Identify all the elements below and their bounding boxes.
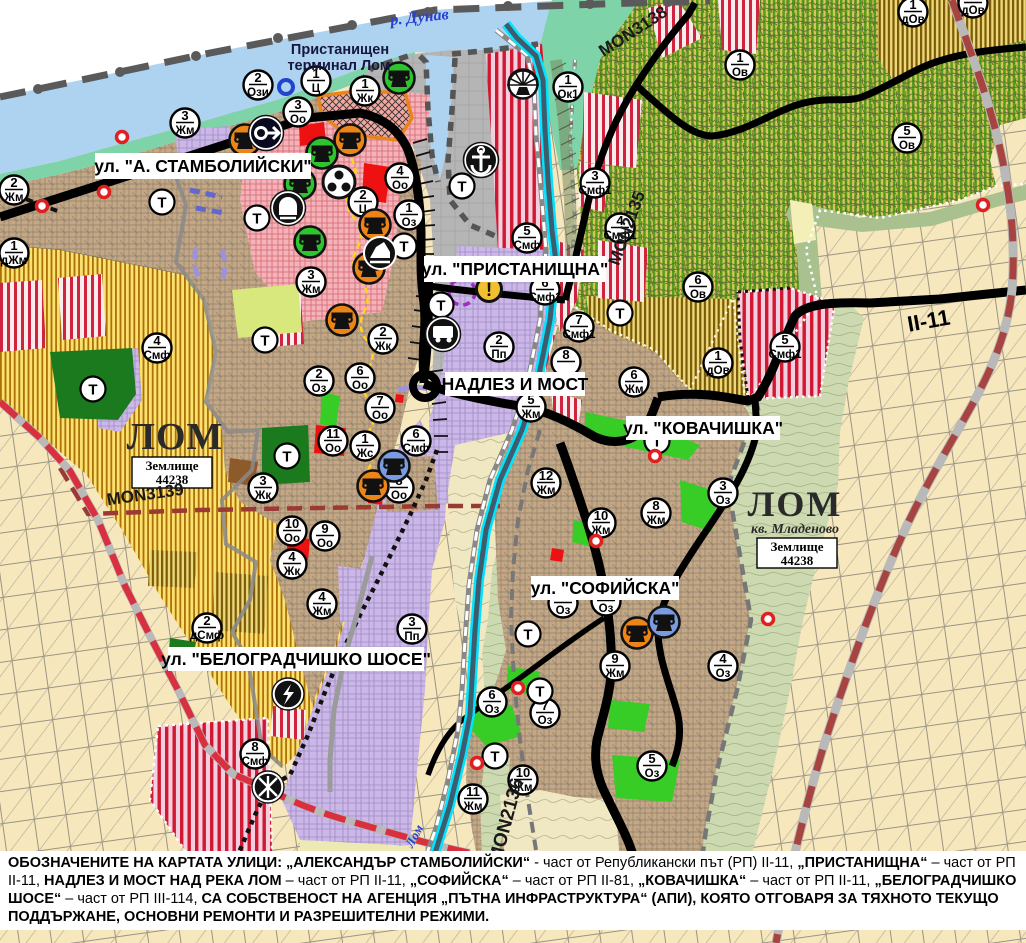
svg-text:Оз: Оз [538, 715, 553, 727]
svg-text:5: 5 [903, 123, 910, 138]
svg-text:Жк: Жк [254, 490, 271, 502]
svg-text:2: 2 [254, 70, 261, 85]
svg-text:10: 10 [516, 765, 530, 780]
svg-text:НАДЛЕЗ И МОСТ: НАДЛЕЗ И МОСТ [442, 374, 589, 394]
svg-text:Жк: Жк [283, 566, 300, 578]
svg-text:Оо: Оо [352, 380, 368, 392]
svg-text:1: 1 [405, 200, 412, 215]
svg-text:Оз: Оз [599, 603, 614, 615]
svg-text:1: 1 [714, 348, 721, 363]
svg-text:4: 4 [318, 589, 326, 604]
svg-text:9: 9 [611, 651, 618, 666]
svg-text:дСмф: дСмф [190, 630, 224, 642]
svg-text:Жм: Жм [463, 801, 483, 813]
svg-text:Землище: Землище [770, 539, 823, 554]
svg-text:1: 1 [909, 0, 916, 12]
svg-text:1: 1 [10, 238, 17, 253]
svg-text:3: 3 [181, 108, 188, 123]
svg-text:Смф: Смф [144, 350, 171, 362]
svg-text:2: 2 [10, 175, 17, 190]
svg-text:ул. "БЕЛОГРАДЧИШКО ШОСЕ": ул. "БЕЛОГРАДЧИШКО ШОСЕ" [161, 649, 431, 669]
svg-text:5: 5 [781, 332, 788, 347]
svg-text:Оо: Оо [392, 180, 408, 192]
svg-text:ул. "А. СТАМБОЛИЙСКИ": ул. "А. СТАМБОЛИЙСКИ" [94, 155, 311, 176]
svg-text:3: 3 [307, 267, 314, 282]
svg-text:Смф: Смф [403, 443, 430, 455]
svg-text:Жм: Жм [536, 485, 556, 497]
svg-text:Оз: Оз [402, 217, 417, 229]
svg-text:8: 8 [562, 347, 569, 362]
svg-text:!: ! [486, 280, 492, 301]
svg-text:3: 3 [294, 97, 301, 112]
svg-text:4: 4 [153, 333, 161, 348]
svg-text:2: 2 [203, 613, 210, 628]
svg-text:ул. "ПРИСТАНИЩНА": ул. "ПРИСТАНИЩНА" [422, 259, 609, 279]
svg-text:Жк: Жк [374, 341, 391, 353]
svg-text:Ози: Ози [247, 87, 269, 99]
svg-text:ул. "СОФИЙСКА": ул. "СОФИЙСКА" [531, 577, 680, 598]
svg-text:4: 4 [288, 549, 296, 564]
svg-text:Смф1: Смф1 [768, 349, 802, 361]
svg-text:дОв: дОв [961, 5, 984, 17]
svg-text:Т: Т [490, 749, 499, 766]
svg-text:ПОДДЪРЖАНЕ, ОСНОВНИ РЕМОНТИ И: ПОДДЪРЖАНЕ, ОСНОВНИ РЕМОНТИ И РАЗРЕШИТЕЛ… [8, 909, 489, 925]
svg-text:Оо: Оо [325, 443, 341, 455]
svg-text:7: 7 [376, 393, 383, 408]
svg-text:44238: 44238 [781, 553, 814, 568]
svg-text:10: 10 [285, 516, 299, 531]
svg-text:Т: Т [436, 298, 445, 315]
svg-text:Ов: Ов [732, 67, 748, 79]
svg-text:11: 11 [326, 426, 340, 441]
svg-text:Оз: Оз [556, 605, 571, 617]
svg-text:Смф1: Смф1 [562, 329, 596, 341]
svg-text:Жс: Жс [356, 448, 374, 460]
svg-text:4: 4 [396, 163, 404, 178]
svg-text:10: 10 [594, 508, 608, 523]
svg-text:Ц: Ц [312, 83, 321, 95]
svg-text:Оз: Оз [716, 668, 731, 680]
svg-text:Оз: Оз [716, 495, 731, 507]
svg-text:Т: Т [457, 179, 466, 196]
svg-text:Ок1: Ок1 [557, 89, 579, 101]
svg-text:Оз: Оз [485, 704, 500, 716]
svg-text:6: 6 [694, 272, 701, 287]
svg-text:11: 11 [466, 784, 480, 799]
svg-text:кв. Младеново: кв. Младеново [751, 522, 839, 537]
svg-text:Оо: Оо [391, 490, 407, 502]
svg-text:Смф: Смф [514, 240, 541, 252]
svg-text:Ов: Ов [690, 289, 706, 301]
svg-text:Оз: Оз [312, 383, 327, 395]
svg-text:Оо: Оо [290, 114, 306, 126]
svg-text:3: 3 [719, 478, 726, 493]
svg-text:Оо: Оо [372, 410, 388, 422]
svg-text:2: 2 [495, 332, 502, 347]
svg-text:5: 5 [523, 223, 530, 238]
svg-text:Жм: Жм [605, 668, 625, 680]
svg-text:дЖм: дЖм [1, 255, 27, 267]
svg-text:ул. "КОВАЧИШКА": ул. "КОВАЧИШКА" [623, 418, 783, 438]
svg-text:6: 6 [488, 687, 495, 702]
svg-text:3: 3 [591, 168, 598, 183]
svg-text:Т: Т [260, 333, 269, 350]
svg-text:Жм: Жм [646, 515, 666, 527]
svg-text:Жм: Жм [301, 284, 321, 296]
svg-text:1: 1 [361, 431, 368, 446]
svg-text:6: 6 [412, 426, 419, 441]
svg-text:Оо: Оо [284, 533, 300, 545]
svg-text:Жм: Жм [4, 192, 24, 204]
svg-text:5: 5 [648, 751, 655, 766]
svg-text:дОв: дОв [706, 365, 729, 377]
svg-text:3: 3 [259, 473, 266, 488]
svg-text:Смф1: Смф1 [528, 292, 562, 304]
svg-text:4: 4 [719, 651, 727, 666]
svg-text:8: 8 [652, 498, 659, 513]
svg-text:2: 2 [315, 366, 322, 381]
svg-text:ЛОМ: ЛОМ [748, 484, 843, 524]
svg-text:6: 6 [630, 367, 637, 382]
svg-text:1: 1 [736, 50, 743, 65]
svg-text:2: 2 [359, 187, 366, 202]
svg-text:ОБОЗНАЧЕНИТЕ НА КАРТАТА УЛИЦИ:: ОБОЗНАЧЕНИТЕ НА КАРТАТА УЛИЦИ: „АЛЕКСАНД… [8, 853, 1016, 871]
svg-text:1: 1 [564, 72, 571, 87]
svg-text:3: 3 [408, 614, 415, 629]
svg-text:Жм: Жм [312, 606, 332, 618]
svg-text:Смф1: Смф1 [578, 185, 612, 197]
svg-text:терминал Лом: терминал Лом [287, 58, 390, 74]
svg-text:II-11, НАДЛЕЗ И МОСТ НАД РЕКА: II-11, НАДЛЕЗ И МОСТ НАД РЕКА ЛОМ – част… [8, 871, 1016, 889]
svg-text:Жм: Жм [624, 384, 644, 396]
svg-text:Т: Т [399, 239, 408, 256]
svg-text:2: 2 [379, 324, 386, 339]
svg-text:Пп: Пп [491, 349, 506, 361]
svg-text:Жм: Жм [175, 125, 195, 137]
svg-text:ШОСЕ“ – част от РП III-114, СА: ШОСЕ“ – част от РП III-114, СА СОБСТВЕНО… [8, 891, 999, 907]
svg-text:12: 12 [539, 468, 553, 483]
svg-text:Т: Т [252, 211, 261, 228]
svg-text:Т: Т [523, 627, 532, 644]
svg-text:Пристанищен: Пристанищен [291, 42, 389, 58]
svg-text:Пп: Пп [404, 631, 419, 643]
svg-text:дОв: дОв [901, 14, 924, 26]
svg-text:8: 8 [251, 739, 258, 754]
svg-text:Т: Т [535, 684, 544, 701]
svg-text:Оо: Оо [317, 538, 333, 550]
svg-text:Т: Т [615, 306, 624, 323]
svg-text:Жм: Жм [521, 409, 541, 421]
svg-text:Ов: Ов [899, 140, 915, 152]
svg-text:9: 9 [321, 521, 328, 536]
svg-text:Т: Т [157, 195, 166, 212]
svg-text:1: 1 [361, 76, 368, 91]
svg-text:Смф: Смф [242, 756, 269, 768]
svg-text:7: 7 [575, 312, 582, 327]
svg-text:Т: Т [282, 449, 291, 466]
svg-text:ЛОМ: ЛОМ [127, 416, 224, 458]
svg-text:Т: Т [88, 382, 97, 399]
svg-text:Землище: Землище [145, 458, 198, 473]
svg-text:Жк: Жк [356, 93, 373, 105]
svg-text:Оз: Оз [645, 768, 660, 780]
svg-text:6: 6 [356, 363, 363, 378]
